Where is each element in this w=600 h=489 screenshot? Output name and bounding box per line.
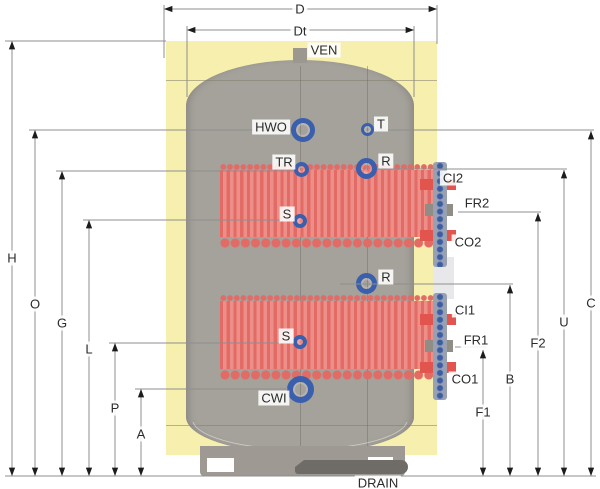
label-fr2: FR2 xyxy=(462,196,493,211)
dim-label-o: O xyxy=(27,297,43,312)
dim-label-b: B xyxy=(503,372,518,387)
label-cwi: CWI xyxy=(258,391,289,406)
label-d: D xyxy=(292,2,307,17)
label-tr: TR xyxy=(272,155,295,170)
label-hwo: HWO xyxy=(252,120,290,135)
tank-dimension-diagram: D Dt VEN HWO T TR R S CI2 FR2 CO2 R CI1 … xyxy=(0,0,600,489)
dim-label-g: G xyxy=(54,316,70,331)
dimension-lines xyxy=(0,0,600,489)
dim-label-p: P xyxy=(108,401,123,416)
dim-label-l: L xyxy=(82,342,95,357)
label-s-lower: S xyxy=(279,329,294,344)
label-ci2: CI2 xyxy=(440,171,466,186)
label-dt: Dt xyxy=(291,24,310,39)
dim-label-u: U xyxy=(556,315,571,330)
label-co2: CO2 xyxy=(452,235,485,250)
dim-label-a: A xyxy=(134,427,149,442)
label-ci1: CI1 xyxy=(452,303,478,318)
label-r-upper: R xyxy=(378,154,393,169)
dim-label-f2: F2 xyxy=(527,336,548,351)
label-co1: CO1 xyxy=(449,372,482,387)
dim-label-c: C xyxy=(583,296,598,311)
label-r-lower: R xyxy=(378,270,393,285)
label-s-upper: S xyxy=(280,207,295,222)
label-t: T xyxy=(374,117,388,132)
dim-label-h: H xyxy=(4,251,19,266)
label-drain: DRAIN xyxy=(355,476,401,489)
label-fr1: FR1 xyxy=(461,333,492,348)
label-ven: VEN xyxy=(308,43,341,58)
dim-label-f1: F1 xyxy=(472,405,493,420)
